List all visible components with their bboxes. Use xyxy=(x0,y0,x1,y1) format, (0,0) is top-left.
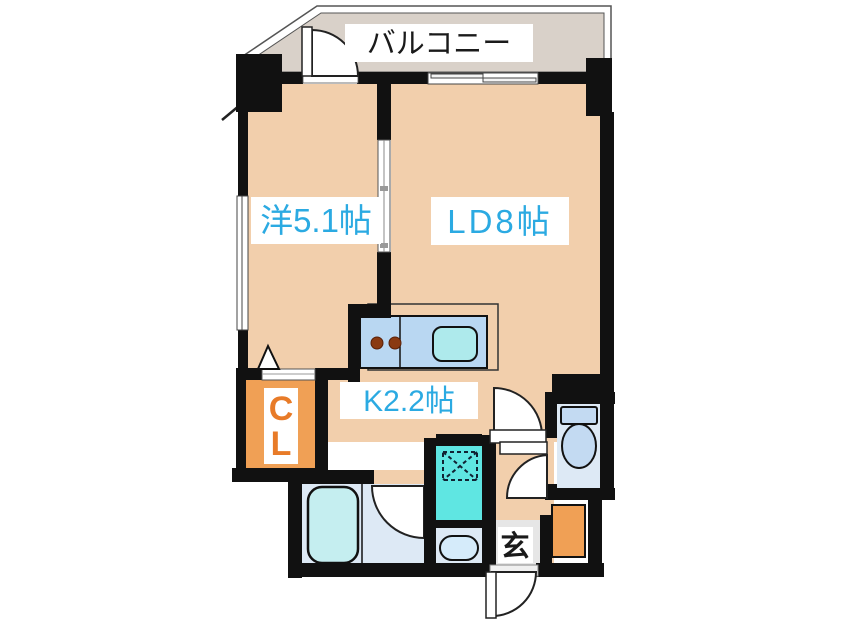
wall xyxy=(436,434,482,446)
stove-burner-icon xyxy=(371,337,383,349)
living-dining-label: LD8帖 xyxy=(447,203,553,240)
kitchen-sink xyxy=(433,327,477,361)
top-window xyxy=(428,73,538,84)
washbasin xyxy=(440,536,478,560)
wall xyxy=(377,78,391,140)
entrance-door xyxy=(486,565,538,618)
western-room-label: 洋5.1帖 xyxy=(260,202,372,239)
wall xyxy=(545,400,557,438)
toilet-bowl xyxy=(562,424,596,468)
wall xyxy=(357,72,428,84)
left-window xyxy=(237,196,248,330)
kitchen-label: K2.2帖 xyxy=(363,385,455,418)
closet-label-line2: L xyxy=(271,425,292,463)
wall xyxy=(600,392,614,500)
stove-burner-icon xyxy=(389,337,401,349)
pillar xyxy=(586,58,612,116)
wall xyxy=(540,515,552,567)
wall xyxy=(288,470,374,484)
wall xyxy=(236,378,246,480)
entrance-label: 玄 xyxy=(500,529,529,563)
wall xyxy=(588,500,602,570)
pillar xyxy=(236,54,282,112)
wall xyxy=(436,520,482,528)
bathtub xyxy=(308,487,358,563)
wall xyxy=(424,438,436,570)
floor-plan: バルコニー 洋5.1帖 LD8帖 K2.2帖 C L 玄 xyxy=(0,0,846,634)
wall xyxy=(482,435,496,570)
wall xyxy=(315,378,328,480)
balcony-label: バルコニー xyxy=(367,28,511,60)
toilet-tank xyxy=(561,407,597,424)
wall xyxy=(238,108,248,196)
wall xyxy=(288,563,490,577)
bath-doorway-floor xyxy=(374,470,424,486)
floor-plan-drawing: バルコニー 洋5.1帖 LD8帖 K2.2帖 C L 玄 xyxy=(0,0,846,634)
closet-sliding-door xyxy=(262,369,315,380)
shoe-cabinet xyxy=(552,505,585,557)
washer-space-floor xyxy=(436,446,482,520)
wall xyxy=(600,112,614,400)
closet-label-line1: C xyxy=(269,390,294,428)
